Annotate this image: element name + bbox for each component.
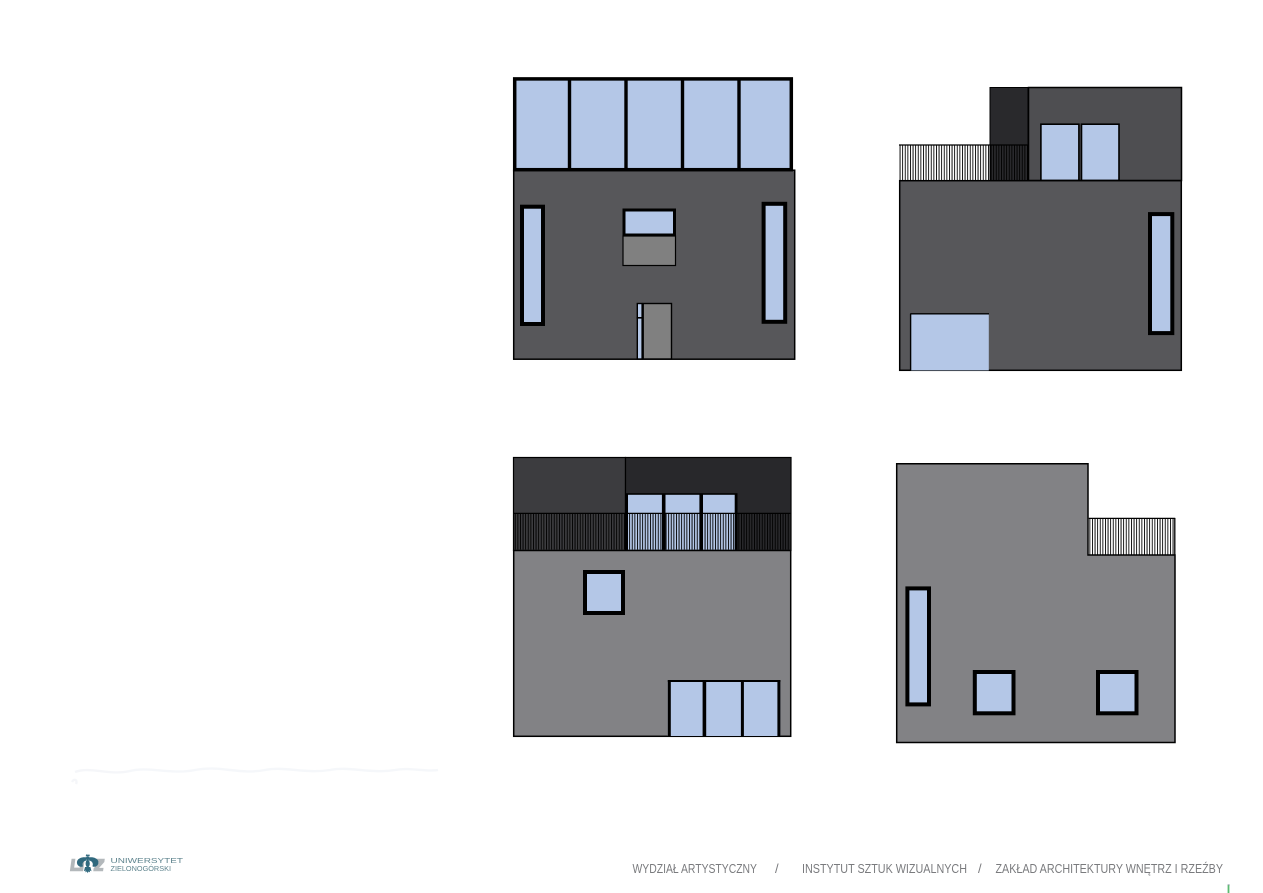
svg-text:INSTYTUT SZTUK WIZUALNYCH: INSTYTUT SZTUK WIZUALNYCH: [802, 861, 967, 876]
svg-text:/: /: [978, 861, 982, 876]
svg-text:UNIWERSYTET: UNIWERSYTET: [111, 858, 185, 865]
svg-text:WYDZIAŁ ARTYSTYCZNY: WYDZIAŁ ARTYSTYCZNY: [633, 861, 758, 876]
svg-text:/: /: [775, 861, 779, 876]
svg-text:ZAKŁAD ARCHITEKTURY WNĘTRZ I R: ZAKŁAD ARCHITEKTURY WNĘTRZ I RZEŹBY: [996, 861, 1224, 876]
svg-text:ZIELONOGÓRSKI: ZIELONOGÓRSKI: [111, 864, 172, 873]
